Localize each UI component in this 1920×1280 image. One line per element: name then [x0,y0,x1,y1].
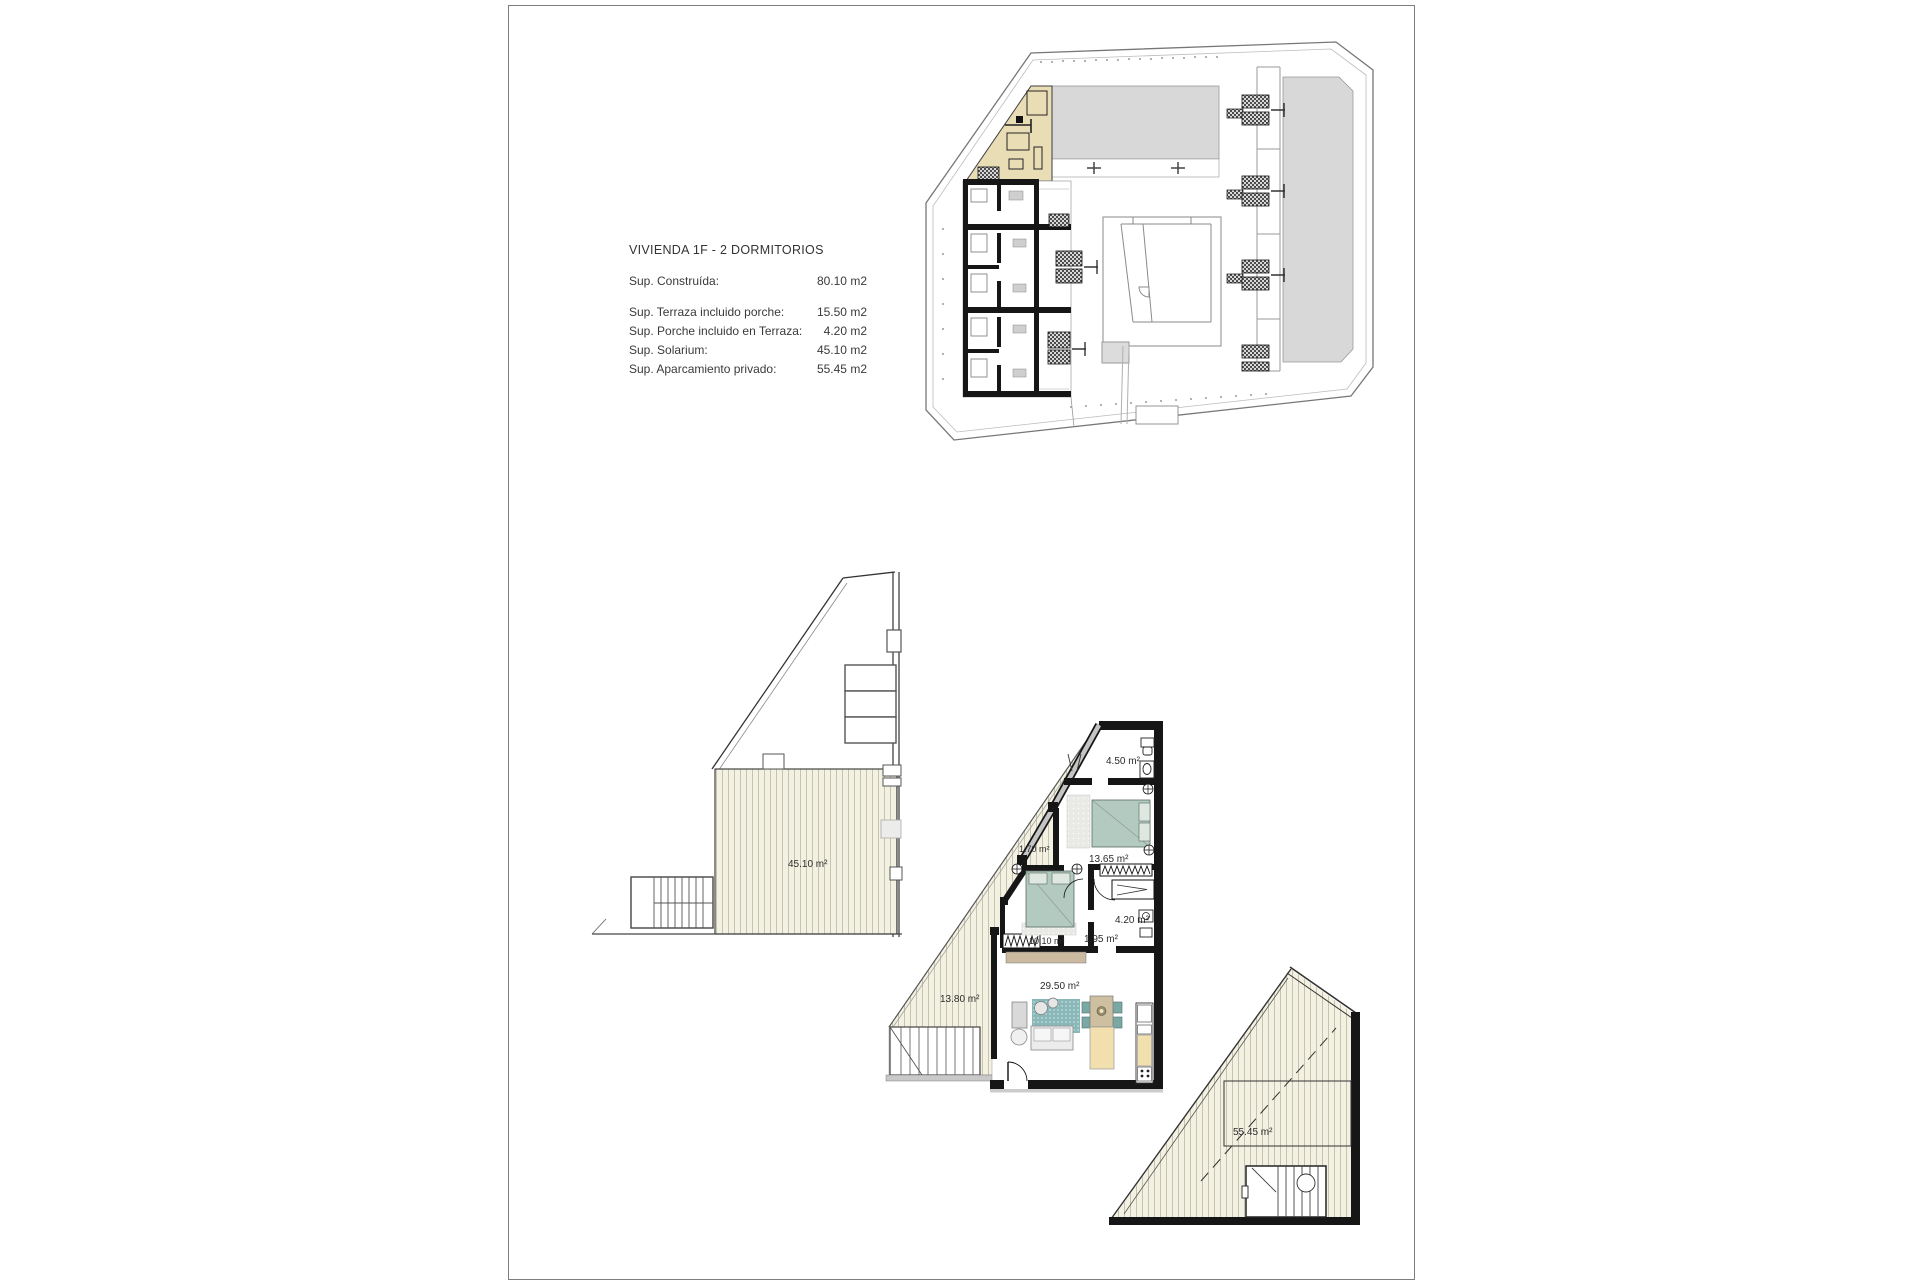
parking-stairs [1242,1166,1326,1217]
info-row-construida: Sup. Construída: 80.10 m2 [629,272,867,291]
solarium-stairs [631,877,713,928]
area-label-hall: 1.95 m² [1084,934,1119,945]
living-room [1011,998,1080,1050]
info-label: Sup. Solarium: [629,341,708,360]
area-label-terrace: 13.80 m² [940,994,980,1005]
info-value: 55.45 m2 [817,360,867,379]
info-label: Sup. Terraza incluido porche: [629,303,784,322]
site-plan [921,29,1401,449]
area-label-bedroom1: 13.65 m² [1089,854,1129,865]
roof-area-top [1052,86,1219,159]
area-label-bath2: 4.20 m² [1115,915,1150,926]
info-row-porche: Sup. Porche incluido en Terraza: 4.20 m2 [629,322,867,341]
area-label-living: 29.50 m² [1040,981,1080,992]
info-label: Sup. Construída: [629,272,719,291]
drawing-sheet: VIVIENDA 1F - 2 DORMITORIOS Sup. Constru… [508,5,1415,1280]
porch-canopy [1006,952,1086,963]
area-label-bedroom2: 10.10 m² [1029,936,1065,946]
terrace-stairs [890,1027,980,1075]
area-label-bath1: 4.50 m² [1106,756,1141,767]
parking-plan: 55.45 m² [1106,956,1368,1236]
area-label-porch: 1.70 m² [1019,844,1050,854]
info-value: 45.10 m2 [817,341,867,360]
info-row-solarium: Sup. Solarium: 45.10 m2 [629,341,867,360]
info-label: Sup. Porche incluido en Terraza: [629,322,802,341]
area-label-solarium: 45.10 m² [788,859,828,870]
roof-area-right [1283,77,1353,362]
unit-title: VIVIENDA 1F - 2 DORMITORIOS [629,243,867,257]
plan-sheet-canvas: VIVIENDA 1F - 2 DORMITORIOS Sup. Constru… [0,0,1920,1280]
wall-fixture [887,630,901,652]
wardrobe-master [1100,864,1152,876]
area-label-parking: 55.45 m² [1233,1127,1273,1138]
info-label: Sup. Aparcamiento privado: [629,360,776,379]
info-row-terraza: Sup. Terraza incluido porche: 15.50 m2 [629,303,867,322]
info-value: 80.10 m2 [817,272,867,291]
site-entry-bump [1136,406,1178,424]
unit-info-block: VIVIENDA 1F - 2 DORMITORIOS Sup. Constru… [629,243,867,379]
info-value: 15.50 m2 [817,303,867,322]
info-row-aparcamiento: Sup. Aparcamiento privado: 55.45 m2 [629,360,867,379]
info-value: 4.20 m2 [824,322,867,341]
